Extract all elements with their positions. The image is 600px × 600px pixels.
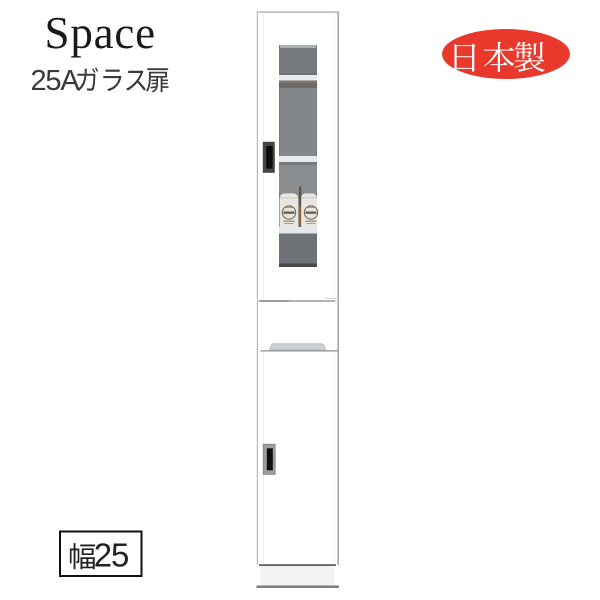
svg-text:25A: 25A [31,65,81,97]
svg-text:25: 25 [94,537,129,574]
svg-text:Space: Space [45,8,156,58]
